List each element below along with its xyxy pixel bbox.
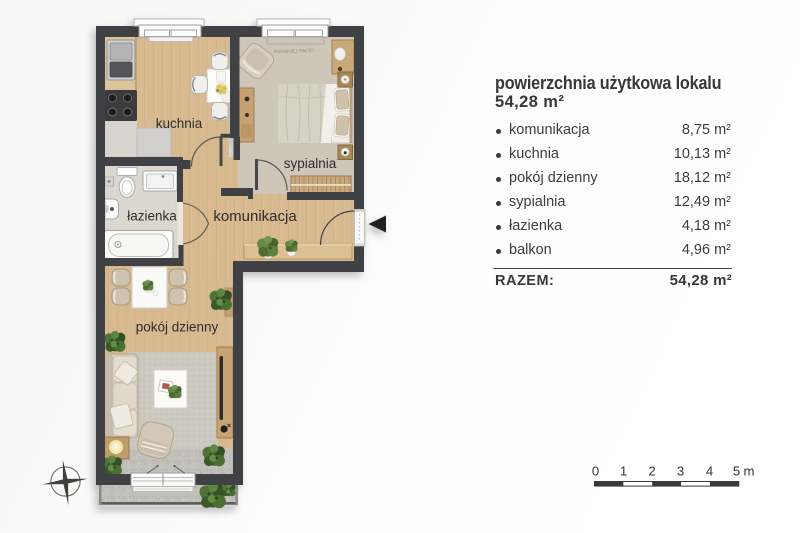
svg-text:łazienka: łazienka [127,209,177,224]
svg-text:kuchnia: kuchnia [156,116,203,131]
svg-text:5: 5 [733,464,740,479]
svg-text:m: m [744,464,755,479]
svg-text:3: 3 [677,464,684,479]
svg-text:PAŃSKIEJ PACE!: PAŃSKIEJ PACE! [274,47,314,55]
svg-text:1: 1 [620,464,627,479]
svg-text:4: 4 [706,464,713,479]
svg-text:pokój dzienny: pokój dzienny [136,320,219,335]
svg-text:2: 2 [648,464,655,479]
svg-text:0: 0 [592,464,599,479]
svg-text:sypialnia: sypialnia [284,156,337,171]
svg-text:komunikacja: komunikacja [213,208,297,225]
